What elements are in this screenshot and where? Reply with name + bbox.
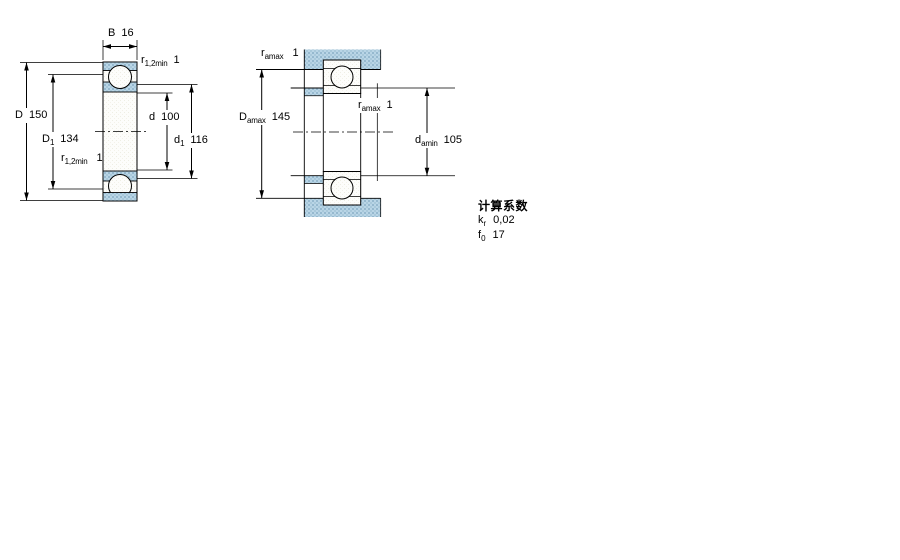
dim-value: 105 [444,134,462,146]
dim-r-mid-right-label: ramax1 [356,98,395,113]
dim-D1-label: D1134 [40,132,81,147]
dim-B [103,40,137,60]
dim-Da-label: Damax145 [237,110,292,125]
dim-value: 116 [190,134,208,146]
dim-value: 1 [386,99,392,111]
dim-d1-label: d1116 [172,133,210,148]
dim-Da [259,70,264,199]
dim-value: 145 [272,111,290,123]
dim-value: 150 [29,109,47,121]
calculation-factors-heading: 计算系数 [478,199,528,213]
dim-value: 134 [60,133,78,145]
dim-symbol: d [149,111,155,123]
dim-r-bottom-left-label: r1,2min1 [59,151,105,166]
shaft-shoulder-bottom [304,176,323,184]
dim-value: 1 [96,152,102,164]
dim-sub: amax [247,116,266,125]
outer-ring-bottom [103,193,137,202]
dim-symbol: D [42,133,50,145]
bearing-drawing-page: B16 r1,2min1 D150 D1134 d100 d1116 r1,2m… [0,0,900,560]
dim-r-top-right-label: ramax1 [259,46,301,61]
ball-top [109,66,132,89]
dim-symbol: D [15,109,23,121]
factor-value: 17 [493,229,505,241]
factor-value: 0,02 [493,214,514,226]
factor-symbol: k [478,214,484,226]
dim-sub: amax [265,52,284,61]
factor-row-kr: kr0,02 [478,213,528,228]
dim-value: 1 [173,54,179,66]
factor-sub: r [484,219,487,228]
dim-value: 1 [292,47,298,59]
dim-value: 16 [121,27,133,39]
dim-symbol: B [108,27,115,39]
dim-symbol: D [239,111,247,123]
dim-sub: 1,2min [65,157,88,166]
dim-sub: 1 [180,139,184,148]
dim-r-top-left-label: r1,2min1 [139,53,182,68]
dim-da-label: damin105 [413,133,464,148]
bearing-drawing-svg [0,0,900,560]
dim-B-label: B16 [106,26,136,41]
ball-bottom-right-view [331,177,353,199]
dim-sub: amin [421,139,438,148]
dim-d-label: d100 [147,110,181,125]
ball-top-right-view [331,66,353,88]
shaft-shoulder-top [304,88,323,96]
dim-d [137,93,173,170]
dim-sub: amax [362,104,381,113]
calculation-factors-block: 计算系数 kr0,02 f017 [478,199,528,243]
factor-row-f0: f017 [478,228,528,243]
dim-value: 100 [161,111,179,123]
dim-D-label: D150 [13,108,49,123]
factor-sub: 0 [481,234,485,243]
dim-sub: 1 [50,138,54,147]
dim-sub: 1,2min [145,59,168,68]
